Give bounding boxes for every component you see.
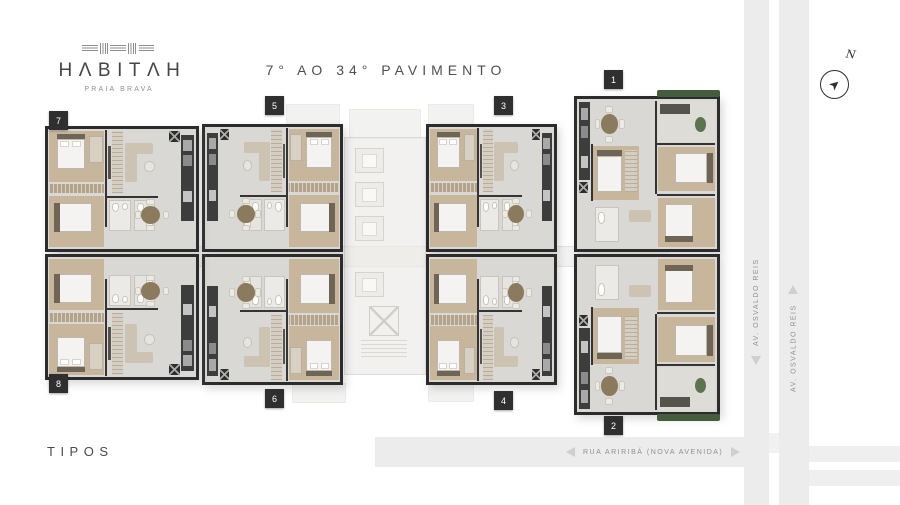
hedge bbox=[657, 90, 720, 97]
sofa-l-horizontal bbox=[125, 352, 153, 363]
tv-panel bbox=[283, 330, 286, 365]
bed2-headboard bbox=[597, 353, 622, 359]
appliance-a bbox=[209, 138, 216, 149]
closet2 bbox=[112, 313, 124, 375]
dining-chair-e bbox=[163, 287, 170, 295]
appliance-c bbox=[581, 156, 588, 168]
unit-4-interior bbox=[429, 257, 554, 382]
interior-wall-bed3 bbox=[657, 312, 715, 314]
tv-panel bbox=[283, 144, 286, 178]
interior-wall-bath bbox=[479, 310, 522, 312]
bed2-headboard bbox=[54, 274, 60, 303]
unit-5-interior bbox=[205, 127, 340, 249]
appliance-c bbox=[543, 190, 550, 201]
wardrobe1 bbox=[290, 134, 302, 161]
unit-5-plan bbox=[202, 124, 343, 252]
appliance-c bbox=[209, 306, 216, 317]
bed1-pillow-b bbox=[72, 141, 81, 147]
unit-8-tag: 8 bbox=[49, 374, 68, 393]
sofa-l-horizontal bbox=[125, 143, 153, 154]
unit-7-plan bbox=[45, 126, 199, 252]
dining-table bbox=[141, 282, 160, 300]
bed1-headboard bbox=[707, 153, 713, 183]
bed2 bbox=[597, 316, 622, 353]
bed3 bbox=[665, 204, 693, 239]
unit-3-interior bbox=[429, 127, 554, 249]
interior-wall-bath bbox=[107, 308, 157, 310]
interior-wall-main bbox=[655, 314, 657, 410]
dining-chair-w bbox=[502, 288, 508, 297]
bed1-pillow-b bbox=[449, 139, 457, 145]
dining-chair-w bbox=[255, 210, 261, 219]
wardrobe bbox=[625, 150, 638, 192]
sink1 bbox=[492, 202, 497, 209]
interior-wall-bed1 bbox=[657, 143, 715, 145]
interior-wall-bath bbox=[479, 195, 522, 197]
interior-wall-main bbox=[477, 128, 479, 227]
bed1-pillow-a bbox=[439, 363, 447, 369]
appliance-a bbox=[543, 138, 550, 149]
appliance-b bbox=[183, 340, 191, 351]
sofa bbox=[629, 285, 651, 297]
wardrobe1 bbox=[89, 136, 102, 162]
appliance-a bbox=[183, 140, 191, 151]
interior-wall-main bbox=[655, 101, 657, 194]
closet2 bbox=[271, 315, 282, 380]
appliance-a bbox=[543, 360, 550, 371]
dining-chair-s bbox=[242, 276, 250, 282]
appliance-c bbox=[581, 341, 588, 353]
dining-chair-n bbox=[512, 198, 520, 204]
interior-wall-main bbox=[286, 128, 288, 227]
dining-chair-w bbox=[255, 288, 261, 297]
shaft-box bbox=[532, 129, 541, 140]
bed2-headboard bbox=[54, 203, 60, 232]
sofa-l-horizontal bbox=[244, 356, 270, 367]
bed1-pillow-b bbox=[449, 363, 457, 369]
bed1-pillow-a bbox=[439, 139, 447, 145]
wardrobe bbox=[625, 316, 638, 359]
closet-strip bbox=[49, 184, 104, 194]
shaft-box bbox=[579, 182, 588, 193]
shaft-box bbox=[169, 364, 179, 375]
wardrobe1 bbox=[464, 134, 475, 161]
bed1 bbox=[675, 325, 707, 356]
bed2 bbox=[597, 156, 622, 192]
unit-6-tag: 6 bbox=[265, 389, 284, 408]
dining-table bbox=[508, 205, 524, 223]
toilet1 bbox=[275, 295, 282, 305]
bed3 bbox=[665, 268, 693, 304]
unit-7-interior bbox=[48, 129, 196, 249]
appliance-a bbox=[209, 360, 216, 371]
interior-wall-main bbox=[286, 280, 288, 381]
dining-chair-n bbox=[146, 301, 155, 307]
dining-chair-e bbox=[619, 381, 625, 391]
dining-table bbox=[508, 283, 524, 302]
dining-chair-w bbox=[502, 210, 508, 219]
shaft-box bbox=[220, 369, 229, 380]
terrace-plant bbox=[695, 117, 706, 132]
sofa-l-horizontal bbox=[244, 142, 270, 153]
bed2-headboard bbox=[434, 203, 439, 232]
appliance-b bbox=[543, 154, 550, 165]
appliance-b bbox=[581, 372, 588, 384]
dining-chair-w bbox=[135, 211, 142, 219]
interior-wall-bed1 bbox=[657, 364, 715, 366]
appliance-b bbox=[581, 126, 588, 138]
dining-chair-w bbox=[135, 287, 142, 295]
interior-wall-main bbox=[105, 130, 107, 227]
toilet1 bbox=[275, 202, 282, 212]
closet2 bbox=[483, 315, 493, 380]
unit-2-tag: 2 bbox=[604, 416, 623, 435]
interior-wall-bath bbox=[240, 310, 286, 312]
coffee-table bbox=[510, 160, 519, 171]
dining-chair-w bbox=[595, 119, 601, 129]
bed3-headboard bbox=[665, 265, 693, 271]
wardrobe1 bbox=[464, 347, 475, 375]
bed1-headboard bbox=[437, 371, 461, 376]
appliance-c bbox=[183, 304, 191, 315]
dining-chair-e bbox=[163, 211, 170, 219]
appliance-b bbox=[183, 155, 191, 166]
shaft-box bbox=[579, 315, 588, 326]
closet-strip bbox=[430, 183, 476, 193]
unit-6-plan bbox=[202, 254, 343, 385]
dining-chair-n bbox=[242, 198, 250, 204]
bed1 bbox=[675, 153, 707, 183]
bed1-pillow-a bbox=[60, 359, 69, 365]
coffee-table bbox=[144, 334, 154, 345]
appliance-a bbox=[183, 355, 191, 366]
toilet1 bbox=[483, 202, 489, 212]
interior-wall-bed3 bbox=[657, 194, 715, 196]
closet2 bbox=[271, 129, 282, 192]
dining-chair-s bbox=[605, 136, 613, 143]
unit-2-plan bbox=[574, 254, 720, 415]
bed1-headboard bbox=[57, 367, 85, 372]
bed1-pillow-a bbox=[321, 139, 329, 145]
unit-8-plan bbox=[45, 254, 199, 380]
toilet bbox=[598, 212, 605, 224]
dining-chair-s bbox=[146, 275, 155, 281]
appliance-c bbox=[543, 306, 550, 317]
appliance-c bbox=[209, 190, 216, 201]
appliance-b bbox=[209, 343, 216, 354]
appliance-a bbox=[581, 390, 588, 402]
coffee-table bbox=[243, 160, 252, 171]
dining-chair-s bbox=[146, 225, 155, 231]
coffee-table bbox=[144, 161, 154, 172]
toilet1 bbox=[112, 294, 119, 304]
closet-strip bbox=[289, 183, 339, 193]
closet-strip bbox=[289, 315, 339, 325]
bed3-headboard bbox=[665, 236, 693, 242]
unit-2-interior bbox=[577, 257, 717, 412]
dining-chair-n bbox=[605, 398, 613, 405]
dining-chair-n bbox=[146, 199, 155, 205]
dining-table bbox=[141, 206, 160, 224]
appliance-c bbox=[183, 191, 191, 202]
tv-panel bbox=[108, 146, 111, 180]
hedge bbox=[657, 414, 720, 421]
building: 12345678 bbox=[0, 0, 900, 505]
unit-1-plan bbox=[574, 96, 720, 252]
dining-chair-w bbox=[595, 381, 601, 391]
unit-4-tag: 4 bbox=[494, 391, 513, 410]
closet2 bbox=[483, 129, 493, 192]
unit-8-interior bbox=[48, 257, 196, 377]
interior-wall-main bbox=[477, 280, 479, 381]
dining-chair-n bbox=[605, 106, 613, 113]
bed2-headboard bbox=[434, 275, 439, 305]
coffee-table bbox=[510, 337, 519, 348]
wardrobe1 bbox=[89, 343, 102, 369]
unit-5-tag: 5 bbox=[265, 96, 284, 115]
terrace-sofa bbox=[660, 104, 691, 115]
dining-chair-s bbox=[605, 367, 613, 374]
shaft-box bbox=[169, 131, 179, 142]
interior-wall-main bbox=[105, 279, 107, 376]
toilet1 bbox=[483, 295, 489, 305]
dining-chair-e bbox=[229, 210, 235, 219]
terrace-plant bbox=[695, 378, 706, 394]
sink1 bbox=[492, 298, 497, 306]
bed1-pillow-a bbox=[60, 141, 69, 147]
sofa-l-horizontal bbox=[494, 356, 518, 367]
unit-6-interior bbox=[205, 257, 340, 382]
unit-1-tag: 1 bbox=[604, 70, 623, 89]
sofa-l-horizontal bbox=[494, 142, 518, 153]
bed1-pillow-b bbox=[310, 363, 318, 369]
dining-chair-e bbox=[619, 119, 625, 129]
sofa bbox=[629, 210, 651, 222]
dining-chair-n bbox=[512, 303, 520, 309]
unit-1-interior bbox=[577, 99, 717, 249]
wardrobe1 bbox=[290, 347, 302, 375]
sink1 bbox=[122, 203, 128, 210]
dining-chair-e bbox=[526, 210, 532, 219]
bed1-pillow-b bbox=[310, 139, 318, 145]
shaft-box bbox=[532, 369, 541, 380]
bed1-headboard bbox=[707, 325, 713, 356]
unit-7-tag: 7 bbox=[49, 111, 68, 130]
dining-chair-s bbox=[242, 225, 250, 231]
dining-table bbox=[601, 114, 618, 134]
dining-chair-e bbox=[526, 288, 532, 297]
bed1-pillow-a bbox=[321, 363, 329, 369]
dining-chair-s bbox=[512, 276, 520, 282]
dining-chair-e bbox=[229, 288, 235, 297]
interior-wall-bath bbox=[107, 196, 157, 198]
tv-panel bbox=[108, 327, 111, 361]
terrace-sofa bbox=[660, 397, 691, 408]
bed1-headboard bbox=[306, 371, 332, 376]
bed2-headboard bbox=[329, 203, 334, 232]
closet-strip bbox=[49, 313, 104, 323]
closet2 bbox=[112, 131, 124, 193]
floorplan-page: HΛBITΛH PRAIA BRAVA 7° AO 34° PAVIMENTO … bbox=[0, 0, 900, 505]
sink1 bbox=[122, 296, 128, 303]
closet-strip bbox=[430, 315, 476, 325]
coffee-table bbox=[243, 337, 252, 348]
appliance-b bbox=[209, 154, 216, 165]
toilet bbox=[598, 283, 605, 295]
dining-table bbox=[237, 283, 255, 302]
bed1-pillow-b bbox=[72, 359, 81, 365]
unit-3-tag: 3 bbox=[494, 96, 513, 115]
shaft-box bbox=[220, 129, 229, 140]
appliance-b bbox=[543, 343, 550, 354]
dining-chair-n bbox=[242, 303, 250, 309]
appliance-a bbox=[581, 108, 588, 120]
bed2-headboard bbox=[329, 275, 334, 305]
interior-wall-bath bbox=[240, 195, 286, 197]
unit-3-plan bbox=[426, 124, 557, 252]
dining-table bbox=[601, 376, 618, 396]
dining-chair-s bbox=[512, 225, 520, 231]
unit-4-plan bbox=[426, 254, 557, 385]
